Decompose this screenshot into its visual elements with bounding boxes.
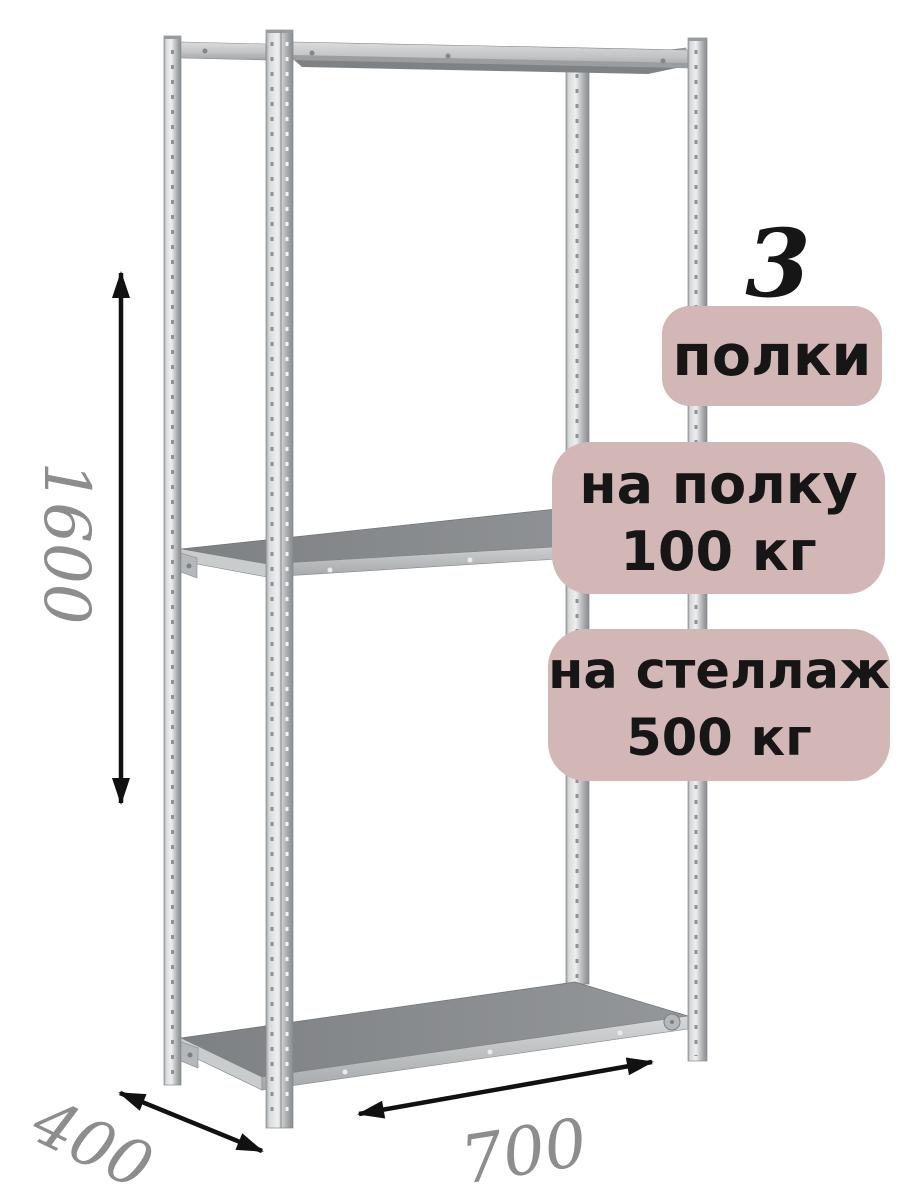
per-rack-load-line1: на стеллаж bbox=[548, 638, 890, 705]
per-rack-load-line2: 500 кг bbox=[626, 705, 811, 772]
rack-drawing bbox=[0, 0, 900, 1200]
shelf-count-badge: полки bbox=[662, 306, 882, 406]
shelf-count-label: полки bbox=[673, 323, 872, 389]
top-frame bbox=[181, 42, 688, 74]
per-shelf-load-line2: 100 кг bbox=[620, 518, 816, 585]
per-rack-load-badge: на стеллаж 500 кг bbox=[548, 629, 890, 781]
bottom-shelf bbox=[181, 982, 688, 1090]
shelf-count-number: 3 bbox=[726, 217, 830, 311]
post-front-left bbox=[266, 30, 293, 1128]
height-dimension-label: 1600 bbox=[26, 423, 106, 663]
per-shelf-load-badge: на полку 100 кг bbox=[552, 442, 885, 594]
post-back-left bbox=[164, 36, 181, 1085]
product-illustration: 1600 400 700 3 полки на полку 100 кг на … bbox=[0, 0, 900, 1200]
per-shelf-load-line1: на полку bbox=[579, 451, 857, 518]
